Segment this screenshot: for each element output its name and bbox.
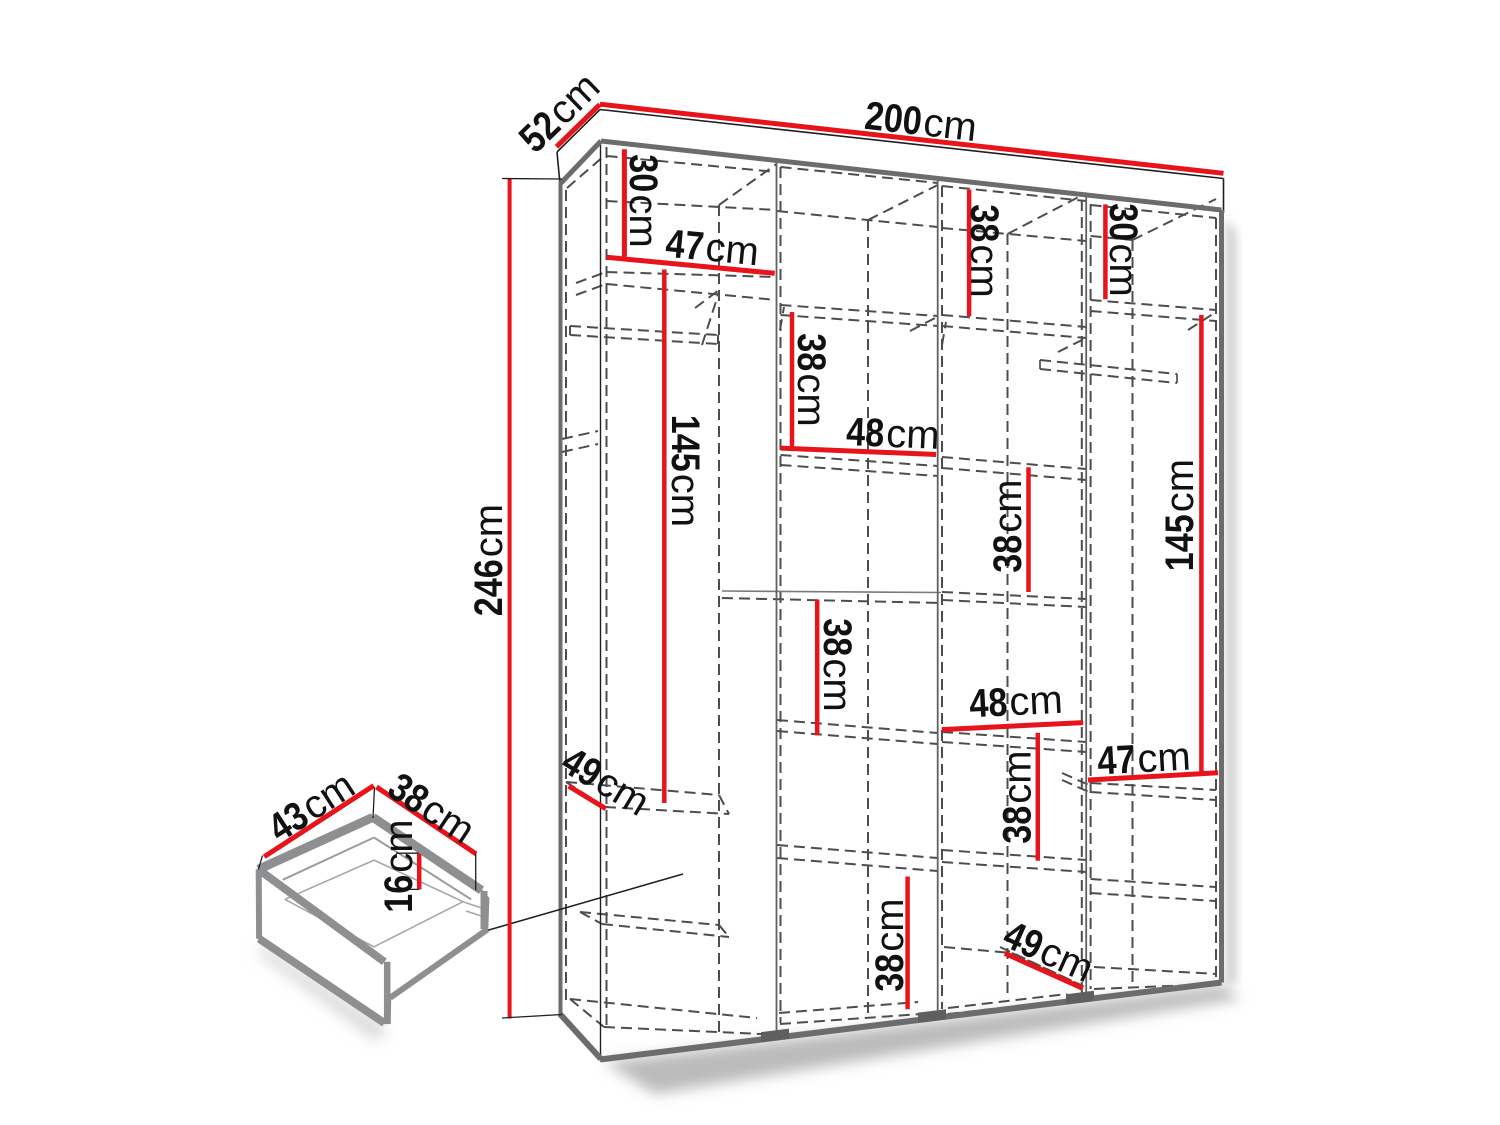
svg-text:cm: cm	[621, 194, 665, 247]
svg-text:38: 38	[986, 535, 1030, 573]
svg-text:cm: cm	[467, 504, 511, 557]
svg-text:cm: cm	[868, 898, 912, 951]
svg-text:cm: cm	[377, 819, 421, 872]
svg-text:38: 38	[962, 204, 1006, 242]
svg-text:cm: cm	[1158, 459, 1202, 512]
svg-text:cm: cm	[962, 244, 1006, 297]
svg-text:200: 200	[863, 94, 925, 144]
svg-text:145: 145	[1158, 514, 1202, 571]
svg-text:cm: cm	[663, 474, 707, 527]
svg-text:cm: cm	[789, 373, 833, 426]
svg-text:246: 246	[467, 559, 511, 616]
svg-text:48: 48	[845, 410, 885, 456]
svg-text:145: 145	[663, 415, 707, 472]
svg-text:cm: cm	[921, 100, 979, 150]
svg-text:38: 38	[789, 333, 833, 371]
svg-text:cm: cm	[1101, 243, 1145, 296]
svg-text:47: 47	[664, 222, 706, 269]
svg-text:16: 16	[377, 875, 421, 913]
svg-text:38: 38	[996, 806, 1040, 844]
svg-text:cm: cm	[986, 479, 1030, 532]
svg-text:38: 38	[868, 954, 912, 992]
svg-text:cm: cm	[704, 225, 761, 274]
svg-text:48: 48	[968, 680, 1008, 726]
svg-text:cm: cm	[996, 750, 1040, 803]
svg-text:38: 38	[815, 618, 859, 656]
svg-text:30: 30	[621, 154, 665, 192]
svg-text:cm: cm	[1008, 678, 1063, 725]
svg-text:cm: cm	[815, 658, 859, 711]
svg-text:cm: cm	[1136, 735, 1192, 782]
svg-text:cm: cm	[885, 412, 940, 458]
svg-text:47: 47	[1096, 738, 1136, 784]
svg-text:30: 30	[1101, 203, 1145, 241]
